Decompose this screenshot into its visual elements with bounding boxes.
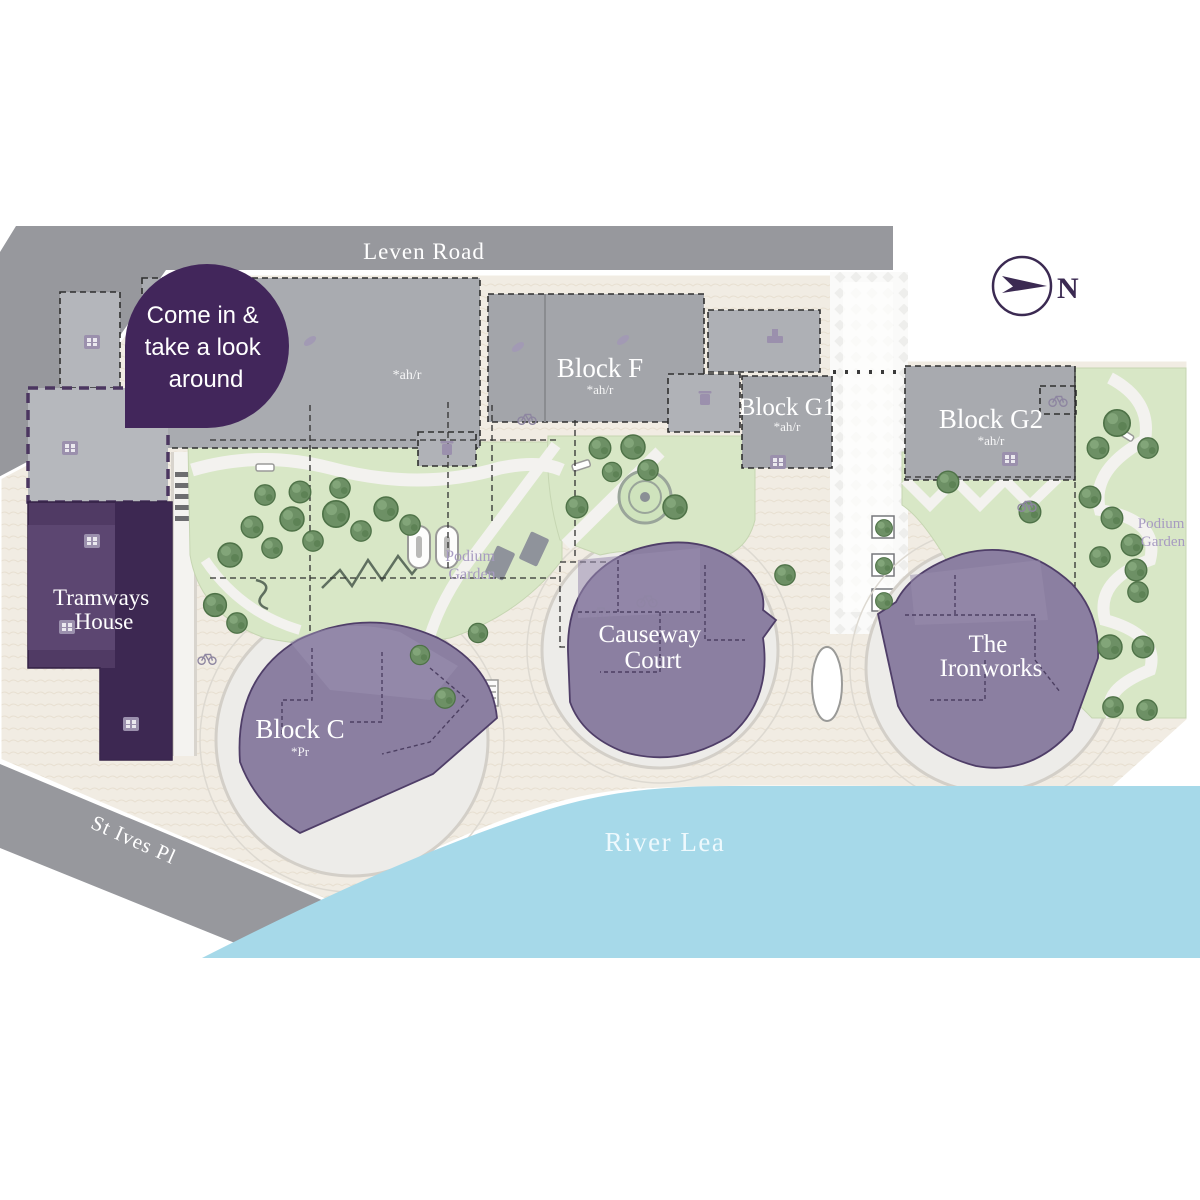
- label-block-g1: Block G1: [739, 394, 836, 421]
- tree-icon: [1087, 437, 1109, 459]
- tree-icon: [1137, 700, 1157, 720]
- tree-icon: [400, 515, 420, 535]
- window-icon: [59, 620, 75, 634]
- compass: N: [993, 257, 1079, 315]
- tree-icon: [323, 501, 349, 527]
- tree-icon: [1138, 438, 1158, 458]
- compass-north-label: N: [1057, 272, 1079, 305]
- label-block-g2: Block G2: [939, 404, 1043, 434]
- tree-icon: [1101, 507, 1123, 529]
- compass-needle-icon: [1002, 276, 1047, 293]
- callout-bubble[interactable]: Come in & take a look around: [125, 264, 289, 428]
- note-block-g2: *ah/r: [978, 433, 1005, 448]
- site-plan: Leven Road St Ives Pl River Lea Block F …: [0, 0, 1200, 1200]
- note-west-building: *ah/r: [393, 368, 422, 383]
- tree-icon: [410, 645, 429, 664]
- window-icon: [84, 335, 100, 349]
- tree-icon: [1090, 547, 1110, 567]
- tree-icon: [351, 521, 371, 541]
- tree-icon: [255, 485, 275, 505]
- window-icon: [1002, 452, 1018, 466]
- tree-icon: [876, 520, 893, 537]
- window-icon: [84, 534, 100, 548]
- tree-icon: [262, 538, 282, 558]
- window-icon: [123, 717, 139, 731]
- label-block-c: Block C: [255, 714, 344, 744]
- tree-icon: [374, 497, 398, 521]
- tree-icon: [204, 594, 227, 617]
- traffic-island: [812, 647, 842, 721]
- tree-icon: [937, 471, 959, 493]
- tree-icon: [1132, 636, 1154, 658]
- label-block-f: Block F: [557, 353, 643, 383]
- tree-icon: [303, 531, 323, 551]
- tree-icon: [621, 435, 645, 459]
- tree-icon: [638, 460, 658, 480]
- tree-icon: [1121, 534, 1143, 556]
- tree-icon: [218, 543, 242, 567]
- tree-icon: [876, 593, 893, 610]
- tree-icon: [1079, 486, 1101, 508]
- building-north-cluster: [708, 310, 820, 372]
- tree-icon: [435, 688, 455, 708]
- note-block-c: *Pr: [291, 744, 310, 759]
- window-icon: [62, 441, 78, 455]
- tree-icon: [589, 437, 611, 459]
- tree-icon: [289, 481, 311, 503]
- tree-icon: [602, 462, 621, 481]
- label-leven-road: Leven Road: [363, 239, 485, 264]
- tree-icon: [566, 496, 588, 518]
- tree-icon: [1103, 697, 1123, 717]
- label-podium-garden-central: Podium Garden: [445, 548, 499, 583]
- tree-icon: [330, 478, 350, 498]
- site-plan-page: Leven Road St Ives Pl River Lea Block F …: [0, 0, 1200, 1200]
- tree-icon: [1104, 410, 1130, 436]
- tree-icon: [280, 507, 304, 531]
- tree-icon: [876, 558, 893, 575]
- tree-icon: [241, 516, 263, 538]
- bin-icon: [441, 441, 454, 455]
- bin-icon: [699, 391, 712, 405]
- tree-icon: [1125, 559, 1147, 581]
- note-block-f: *ah/r: [587, 382, 614, 397]
- tree-icon: [468, 623, 487, 642]
- label-river-lea: River Lea: [605, 827, 726, 857]
- tree-icon: [775, 565, 795, 585]
- tree-icon: [227, 613, 247, 633]
- note-block-g1: *ah/r: [774, 419, 801, 434]
- plaza-strip: [830, 272, 908, 634]
- window-icon: [770, 455, 786, 469]
- tree-icon: [663, 495, 687, 519]
- tree-icon: [1128, 582, 1148, 602]
- tree-icon: [1098, 635, 1122, 659]
